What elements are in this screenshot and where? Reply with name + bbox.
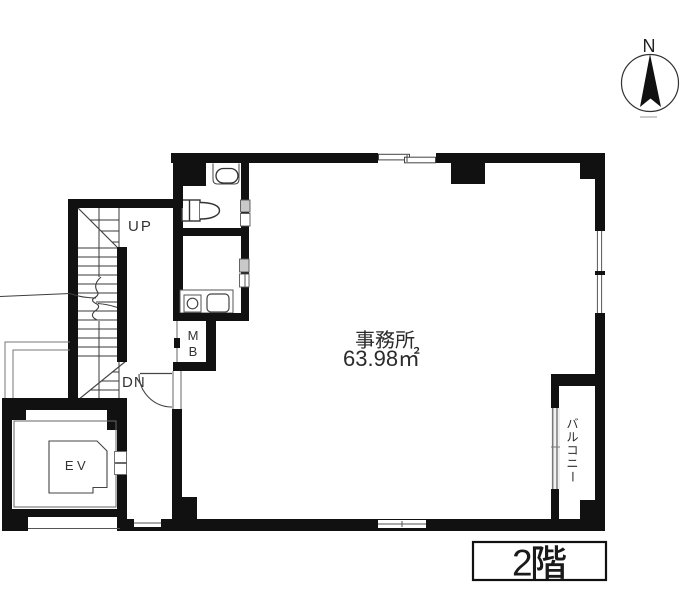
svg-text:EV: EV (65, 458, 89, 473)
svg-text:63.98: 63.98 (343, 346, 398, 371)
svg-text:N: N (643, 36, 656, 56)
svg-text:2: 2 (512, 543, 533, 584)
svg-text:M: M (188, 328, 199, 343)
svg-text:UP: UP (128, 218, 153, 235)
svg-text:B: B (189, 344, 198, 359)
